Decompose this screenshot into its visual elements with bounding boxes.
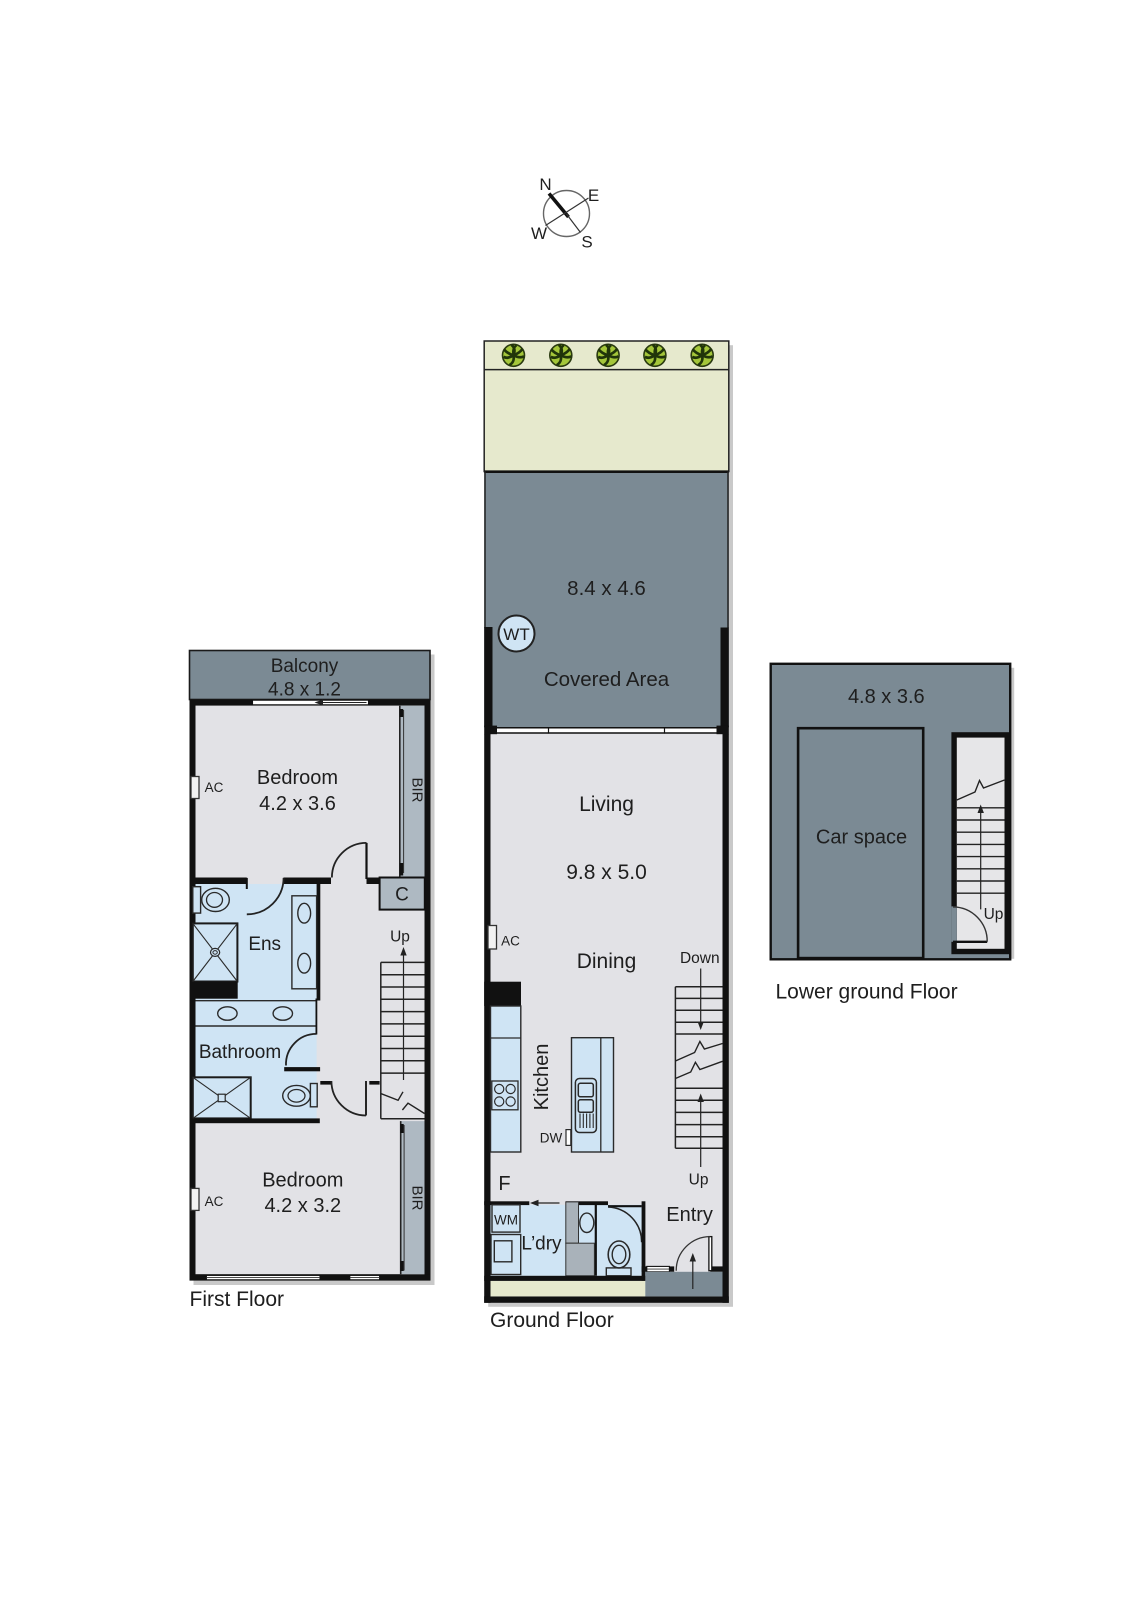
svg-text:Bedroom: Bedroom <box>262 1170 343 1192</box>
svg-text:4.2 x 3.6: 4.2 x 3.6 <box>259 793 336 815</box>
svg-text:Lower ground Floor: Lower ground Floor <box>776 981 958 1004</box>
svg-text:Down: Down <box>680 950 720 967</box>
svg-text:Up: Up <box>689 1172 709 1189</box>
svg-text:E: E <box>588 186 599 205</box>
svg-text:4.8 x 1.2: 4.8 x 1.2 <box>268 680 341 701</box>
svg-text:N: N <box>539 175 551 194</box>
svg-text:Up: Up <box>984 906 1004 923</box>
svg-text:8.4 x 4.6: 8.4 x 4.6 <box>567 577 646 600</box>
svg-text:WM: WM <box>494 1213 518 1228</box>
svg-text:Entry: Entry <box>666 1204 713 1226</box>
svg-text:Up: Up <box>390 929 410 946</box>
svg-text:WT: WT <box>503 625 529 644</box>
svg-text:BIR: BIR <box>409 777 426 802</box>
svg-text:9.8 x 5.0: 9.8 x 5.0 <box>566 861 647 884</box>
svg-text:C: C <box>395 885 409 906</box>
svg-text:4.8 x 3.6: 4.8 x 3.6 <box>848 686 925 708</box>
svg-text:4.2 x 3.2: 4.2 x 3.2 <box>264 1195 341 1217</box>
svg-text:W: W <box>531 224 547 243</box>
svg-text:Kitchen: Kitchen <box>531 1044 553 1111</box>
svg-text:Dining: Dining <box>577 950 637 973</box>
svg-text:Balcony: Balcony <box>271 656 339 677</box>
svg-text:BIR: BIR <box>409 1185 426 1210</box>
svg-text:Bathroom: Bathroom <box>199 1042 281 1063</box>
svg-text:DW: DW <box>540 1131 563 1146</box>
svg-text:Covered Area: Covered Area <box>544 668 670 691</box>
svg-text:L’dry: L’dry <box>521 1234 562 1255</box>
svg-text:AC: AC <box>205 1194 224 1209</box>
svg-text:Car space: Car space <box>816 827 907 849</box>
svg-text:First Floor: First Floor <box>190 1288 285 1311</box>
svg-text:F: F <box>498 1173 510 1195</box>
svg-text:Bedroom: Bedroom <box>257 767 338 789</box>
svg-text:S: S <box>581 233 592 252</box>
svg-text:AC: AC <box>501 934 520 949</box>
svg-text:AC: AC <box>205 780 224 795</box>
svg-text:Ens: Ens <box>248 934 281 955</box>
svg-text:Living: Living <box>579 793 634 816</box>
svg-text:Ground Floor: Ground Floor <box>490 1309 614 1332</box>
